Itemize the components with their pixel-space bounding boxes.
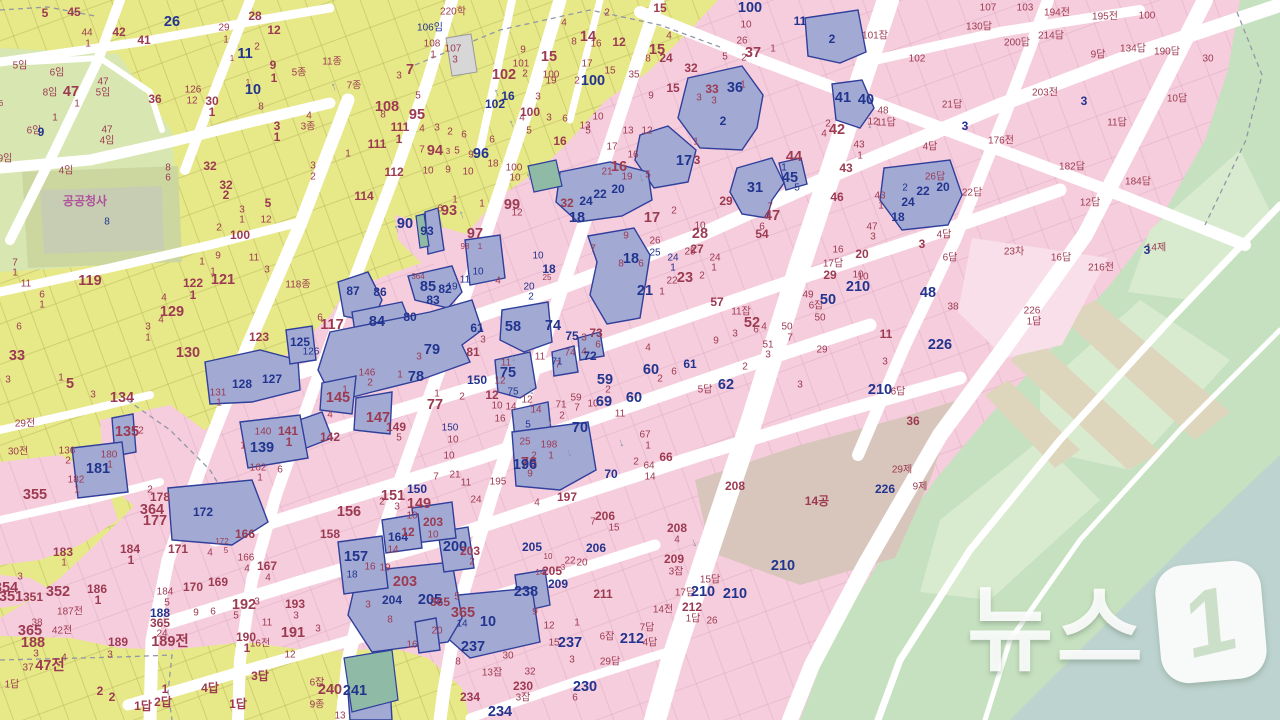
parcel-label: 1 (396, 132, 403, 146)
parcel-label: 352 (46, 584, 70, 600)
parcel-label: 214답 (1038, 30, 1064, 42)
parcel-label: 29전 (15, 418, 35, 430)
parcel-label: 98 (461, 242, 470, 251)
parcel-label: 166 (235, 527, 255, 541)
parcel-label: 7 (419, 145, 425, 156)
parcel-label: 32 (684, 61, 698, 75)
parcel-label: 1 (145, 333, 151, 344)
parcel-label: 1 (645, 441, 651, 452)
parcel-label: 26 (649, 236, 661, 247)
parcel-label: 6임 (50, 66, 65, 79)
parcel-label: 2 (574, 76, 580, 87)
parcel-label: 3 (293, 611, 299, 622)
parcel-label: 195 (490, 477, 507, 488)
parcel-label: 3 (694, 153, 701, 167)
parcel-label: 187전 (57, 606, 83, 618)
parcel-label: 2 (109, 690, 116, 704)
parcel-label: 6 (317, 313, 323, 324)
parcel-label: 107 (980, 3, 997, 14)
parcel-label: 94 (427, 143, 443, 159)
parcel-label: 22 (916, 184, 930, 198)
parcel-label: 7 (787, 333, 793, 344)
parcel-label: 3 (870, 232, 876, 243)
parcel-label: 12 (260, 215, 272, 226)
parcel-label: 2 (65, 456, 71, 467)
parcel-label: 2 (559, 411, 565, 422)
parcel-label: 184 (157, 587, 174, 598)
parcel-label: 93 (441, 203, 457, 219)
parcel-label: 20 (855, 247, 869, 261)
parcel-label: 2 (223, 188, 230, 202)
parcel-label: 240 (318, 682, 342, 698)
parcel-label: 2 (138, 426, 144, 437)
parcel-label: 30 (1202, 54, 1214, 65)
parcel-label: 10 (740, 20, 752, 31)
parcel-label: 3종 (301, 121, 316, 133)
parcel-label: 11답 (876, 117, 896, 129)
parcel-label: 10 (491, 401, 503, 412)
parcel-label: 16답 (1051, 252, 1071, 264)
parcel-label: 4 (666, 31, 672, 42)
parcel-label: 3 (434, 123, 440, 134)
parcel-label: 32 (560, 196, 574, 210)
parcel-label: 14 (387, 545, 399, 556)
parcel-label: 182답 (1059, 161, 1085, 173)
parcel-label: 193 (285, 597, 305, 611)
parcel-label: 16 (494, 414, 506, 425)
parcel-label: 1 (693, 137, 699, 148)
parcel-label: 1 (210, 267, 216, 278)
parcel-label: 11 (535, 352, 546, 363)
parcel-label: 7 (590, 244, 596, 255)
parcel-label: 3 (732, 329, 738, 340)
parcel-label: 1 (128, 553, 135, 567)
parcel-label: 2 (657, 374, 663, 385)
parcel-label: 210 (868, 382, 892, 398)
parcel-label: 220학 (440, 6, 466, 18)
parcel-label: 211 (593, 587, 613, 601)
parcel-label: 74 (545, 318, 561, 334)
parcel-label: 216전 (1088, 262, 1114, 274)
parcel-label: 15 (653, 1, 667, 15)
parcel-label: 37 (22, 663, 34, 674)
parcel-label: 2 (902, 183, 908, 194)
parcel-label: 9답 (1091, 49, 1106, 61)
parcel-label: 16 (553, 134, 567, 148)
parcel-label: 1답 (686, 613, 701, 625)
parcel-label: 21 (449, 470, 461, 481)
parcel-label: 6 (753, 325, 759, 336)
parcel-label: 135 (115, 424, 139, 440)
parcel-label: 1 (230, 54, 235, 63)
parcel-label: 5 (454, 146, 460, 157)
parcel-label: 3 (1081, 94, 1088, 108)
parcel-label: 6 (759, 222, 765, 233)
parcel-label: 7 (767, 202, 773, 213)
parcel-label: 150 (467, 373, 487, 387)
parcel-label: 3 (581, 333, 587, 344)
parcel-label: 12 (511, 208, 523, 219)
parcel-label: 36 (906, 414, 920, 428)
parcel-label: 142 (320, 430, 340, 444)
parcel-label: 237 (558, 635, 582, 651)
parcel-label: 83 (426, 293, 440, 307)
parcel-label: 130답 (966, 21, 992, 33)
parcel-label: 10답 (1167, 93, 1187, 105)
parcel-label: 355 (23, 487, 47, 503)
parcel-label: 3 (396, 71, 402, 82)
parcel-label: 57 (710, 295, 724, 309)
parcel-label: 2 (829, 32, 836, 46)
parcel-label: 101잡 (862, 30, 888, 42)
parcel-label: 12 (521, 395, 533, 406)
parcel-label: 1 (209, 105, 216, 119)
parcel-label: 2 (97, 684, 104, 698)
parcel-label: 205 (542, 564, 562, 578)
parcel-label: 3 (569, 655, 575, 666)
parcel-label: 139 (250, 440, 274, 456)
parcel-label: 62 (718, 377, 734, 393)
parcel-label: 48 (920, 285, 936, 301)
parcel-label: 208 (725, 479, 745, 493)
parcel-label: 1답 (134, 698, 152, 713)
parcel-label: 3 (90, 390, 96, 401)
parcel-label: 5 (42, 6, 49, 20)
parcel-label: 3잡 (516, 692, 531, 704)
parcel-label: 9 (520, 45, 526, 56)
parcel-label: 197 (557, 490, 577, 504)
parcel-label: 27 (690, 242, 704, 256)
parcel-label: 49 (802, 290, 814, 301)
parcel-label: 81 (466, 345, 480, 359)
parcel-label: 6 (489, 135, 495, 146)
parcel-label: 203 (423, 515, 443, 529)
parcel-label: 119 (78, 273, 101, 289)
parcel-label: 5 (645, 170, 651, 181)
parcel-label: 2 (469, 557, 475, 568)
parcel-label: 111 (368, 137, 387, 151)
parcel-label: 79 (424, 342, 440, 358)
parcel-label: 21답 (942, 99, 962, 111)
parcel-label: 8 (618, 259, 624, 270)
parcel-label: 20 (936, 180, 950, 194)
parcel-label: 17 (581, 59, 593, 70)
parcel-label: 36 (727, 80, 743, 96)
parcel-label: 1 (95, 593, 102, 607)
parcel-label: 42전 (52, 625, 72, 637)
parcel-label: 6답 (891, 386, 906, 398)
parcel-label: 9 (713, 336, 719, 347)
parcel-label: 10 (462, 167, 474, 178)
parcel-label: 1 (39, 300, 45, 311)
parcel-label: 4 (645, 343, 651, 354)
parcel-label: 6 (165, 173, 171, 184)
parcel-label: 1 (286, 435, 293, 449)
parcel-label: 3 (1144, 243, 1151, 257)
parcel-label: 149 (407, 496, 431, 512)
parcel-label: 2 (447, 127, 453, 138)
parcel-label: 134답 (1120, 43, 1146, 55)
parcel-label: 200답 (1004, 37, 1030, 49)
parcel-label: 16 (627, 150, 639, 161)
parcel-label: 47 (97, 77, 109, 88)
parcel-label: 1 (12, 268, 18, 279)
parcel-label: 177 (143, 513, 167, 529)
parcel-label: 9 (38, 125, 45, 139)
parcel-label: 29답 (600, 656, 620, 668)
parcel-label: 31 (747, 180, 763, 196)
parcel-label: 1 (659, 287, 665, 298)
parcel-label: 61 (683, 357, 697, 371)
parcel-label: 78 (408, 369, 424, 385)
parcel-label: 1 (430, 50, 436, 61)
parcel-label: 209 (664, 552, 684, 566)
parcel-label: 4 (158, 315, 164, 326)
parcel-label: 6 (572, 693, 578, 704)
parcel-label: 20 (576, 558, 588, 569)
parcel-label: 3 (145, 322, 151, 333)
parcel-label: 1 (574, 618, 580, 629)
parcel-label: 70 (572, 420, 588, 436)
parcel-label: 24 (579, 194, 593, 208)
parcel-label: 198 (541, 440, 558, 451)
parcel-label: 50 (814, 313, 826, 324)
parcel-label: 13 (334, 711, 346, 720)
parcel-label: 108 (424, 39, 441, 50)
parcel-label: 50 (781, 322, 793, 333)
parcel-label: 114 (354, 189, 374, 203)
map-canvas[interactable]: ↑↑↑↑↑↑↑↑↑↑↑↑↑↑545441424126291281211종7종5임… (0, 0, 1280, 720)
parcel-label: 75 (507, 387, 519, 398)
parcel-label: 32 (524, 667, 536, 678)
parcel-label: 41 (137, 33, 151, 47)
parcel-label: 195전 (1092, 11, 1118, 23)
parcel-label: 11 (237, 46, 252, 62)
parcel-label: 12 (494, 376, 506, 387)
parcel-label: 9 (445, 165, 451, 176)
parcel-label: 6 (277, 465, 283, 476)
parcel-label: 2 (604, 8, 610, 19)
parcel-label: 134 (110, 390, 134, 406)
parcel-label: 1 (162, 682, 169, 696)
parcel-label: 3 (394, 502, 400, 513)
parcel-label: 7 (406, 62, 414, 78)
parcel-label: 71 (555, 400, 567, 411)
parcel-label: 3 (962, 119, 969, 133)
parcel-label: 11 (460, 275, 471, 286)
parcel-label: 210 (723, 586, 747, 602)
parcel-label: 10 (447, 435, 459, 446)
parcel-label: 204 (382, 593, 402, 607)
parcel-label: 210 (691, 584, 715, 600)
cadastral-map-screen: ↑↑↑↑↑↑↑↑↑↑↑↑↑↑545441424126291281211종7종5임… (0, 0, 1280, 720)
parcel-label: 1 (190, 288, 197, 302)
parcel-label: 5 (454, 592, 460, 603)
parcel-label: 10 (857, 272, 869, 283)
parcel-label: 14 (505, 402, 517, 413)
parcel-label: 10 (472, 267, 484, 278)
parcel-label: 1 (857, 151, 863, 162)
parcel-label: 351 (0, 589, 23, 605)
parcel-label: 29 (816, 345, 828, 356)
parcel-label: 12 (186, 96, 198, 107)
parcel-label: 12 (401, 525, 415, 539)
parcel-label: 140 (255, 427, 272, 438)
parcel-label: 9종 (310, 699, 325, 711)
parcel-label: 3 (365, 600, 371, 611)
parcel-label: 192 (232, 597, 256, 613)
parcel-label: 3 (919, 237, 926, 251)
parcel-label: 50 (820, 292, 836, 308)
parcel-label: 3 (535, 92, 541, 103)
parcel-label: 32 (203, 159, 217, 173)
selected-parcel-purple[interactable] (805, 10, 866, 63)
parcel-label: 47전 (35, 657, 64, 674)
parcel-label: 1 (216, 398, 222, 409)
parcel-label: 42 (829, 122, 845, 138)
parcel-label: 8 (387, 615, 393, 626)
parcel-label: 130 (176, 345, 200, 361)
parcel-label: 40 (858, 92, 874, 108)
parcel-label: 241 (343, 683, 367, 699)
parcel-label: 9제 (913, 481, 928, 493)
parcel-label: 11 (262, 618, 273, 629)
parcel-label: 12답 (1080, 197, 1100, 209)
parcel-label: 212 (682, 600, 702, 614)
parcel-label: 3 (546, 113, 552, 124)
parcel-label: 60 (626, 390, 642, 406)
parcel-label: 9 (623, 231, 629, 242)
parcel-label: 25 (649, 248, 661, 259)
parcel-label: 7 (574, 403, 580, 414)
parcel-label: 10 (406, 511, 418, 522)
parcel-label: 21 (637, 283, 653, 299)
parcel-label: 10 (544, 552, 553, 561)
parcel-label: 15 (541, 49, 557, 65)
parcel-label: 3 (480, 335, 486, 346)
parcel-label: 11 (615, 409, 626, 420)
parcel-label: 66 (659, 450, 673, 464)
parcel-label: 3잡 (669, 566, 684, 578)
parcel-label: 16 (364, 562, 376, 573)
parcel-label: 4답 (937, 229, 952, 241)
parcel-label: 6 (638, 259, 644, 270)
parcel-label: 4 (561, 18, 567, 29)
parcel-label: 9임 (0, 152, 12, 165)
parcel-label: 1 (74, 99, 80, 110)
parcel-label: 5 (722, 52, 728, 63)
parcel-label: 공공청사 (63, 193, 107, 208)
parcel-label: 71 (551, 357, 563, 368)
parcel-label: 6답 (943, 252, 958, 264)
parcel-label: 3 (711, 96, 717, 107)
parcel-label: 10 (592, 112, 604, 123)
parcel-label: 170 (183, 580, 203, 594)
parcel-label: 18 (569, 210, 585, 226)
parcel-label: 3 (765, 350, 771, 361)
parcel-label: 64 (643, 461, 655, 472)
parcel-label: 38 (947, 302, 959, 313)
parcel-label: 5답 (698, 384, 713, 396)
parcel-label: 9 (270, 58, 277, 72)
parcel-label: 16 (832, 245, 844, 256)
parcel-label: 4 (327, 410, 333, 421)
parcel-label: 351 (23, 590, 43, 604)
parcel-label: 166 (238, 553, 255, 564)
parcel-label: 171 (168, 542, 188, 556)
parcel-label: 2 (671, 206, 677, 217)
parcel-label: 23 (677, 270, 693, 286)
parcel-label: 87 (346, 284, 360, 298)
parcel-label: 11답 (1107, 117, 1127, 129)
parcel-label: 3 (315, 624, 321, 635)
parcel-label: 10 (532, 251, 544, 262)
cadastral-map-svg[interactable]: ↑↑↑↑↑↑↑↑↑↑↑↑↑↑545441424126291281211종7종5임… (0, 0, 1280, 720)
parcel-label: 22답 (962, 187, 982, 199)
parcel-label: 5 (265, 196, 272, 210)
parcel-label: 123 (249, 330, 269, 344)
parcel-label: 2 (528, 292, 534, 303)
parcel-label: 24 (901, 195, 915, 209)
parcel-label: 2 (310, 172, 316, 183)
parcel-label: 1 (61, 558, 67, 569)
parcel-label: 1 (52, 113, 58, 124)
selected-parcel-teal[interactable] (528, 160, 562, 192)
parcel-label: 9 (532, 607, 538, 618)
parcel-label: 29 (218, 23, 230, 34)
parcel-label: 36 (148, 92, 162, 106)
parcel-label: 44 (786, 149, 802, 165)
parcel-label: 61 (470, 321, 484, 335)
selected-parcel-teal[interactable] (344, 650, 398, 712)
parcel-label: 12 (612, 35, 626, 49)
parcel-label: 2 (531, 451, 537, 462)
parcel-label: 12 (543, 621, 555, 632)
parcel-label: 206 (586, 541, 606, 555)
parcel-label: 1 (478, 242, 483, 251)
parcel-label: 172 (215, 537, 229, 546)
parcel-label: 16전 (250, 638, 270, 650)
parcel-label: 203전 (1032, 87, 1058, 99)
parcel-label: 13 (622, 126, 634, 137)
parcel-label: 1답 (1027, 316, 1042, 328)
parcel-label: 29제 (892, 464, 912, 476)
parcel-label: 205 (522, 540, 542, 554)
parcel-label: 7 (433, 472, 439, 483)
parcel-label: 26 (706, 616, 718, 627)
parcel-label: 1답 (229, 696, 247, 711)
parcel-label: 9 (648, 91, 654, 102)
parcel-label: 2 (216, 223, 222, 234)
parcel-label: 1 (434, 389, 440, 400)
parcel-label: 181 (86, 461, 110, 477)
parcel-label: 1 (85, 39, 91, 50)
parcel-label: 100 (581, 73, 605, 89)
parcel-label: 167 (257, 559, 277, 573)
parcel-label: 103 (1017, 3, 1034, 14)
parcel-label: 102 (485, 97, 505, 111)
parcel-label: 5 (526, 126, 532, 137)
parcel-label: 41 (835, 90, 851, 106)
parcel-label: 67 (639, 430, 651, 441)
parcel-label: 18 (623, 251, 639, 267)
parcel-label: 1 (58, 373, 64, 384)
parcel-label: 15 (666, 81, 680, 95)
parcel-label: 156 (337, 504, 361, 520)
parcel-label: 365 (430, 595, 450, 609)
parcel-label: 5 (66, 376, 74, 392)
parcel-label: 70 (604, 467, 618, 481)
